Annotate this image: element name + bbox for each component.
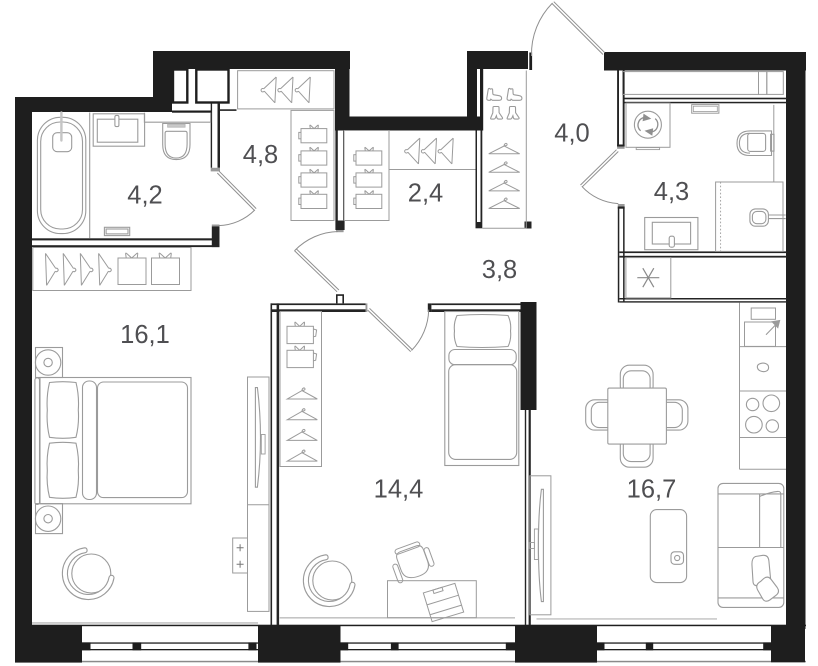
svg-text:4,8: 4,8 bbox=[243, 141, 278, 169]
svg-text:4,3: 4,3 bbox=[654, 178, 689, 206]
svg-text:16,1: 16,1 bbox=[120, 321, 170, 349]
svg-text:4,2: 4,2 bbox=[127, 182, 162, 210]
svg-text:16,7: 16,7 bbox=[627, 476, 677, 504]
svg-text:2,4: 2,4 bbox=[408, 180, 443, 208]
svg-text:4,0: 4,0 bbox=[554, 120, 589, 148]
svg-text:14,4: 14,4 bbox=[374, 476, 424, 504]
svg-text:3,8: 3,8 bbox=[482, 256, 517, 284]
